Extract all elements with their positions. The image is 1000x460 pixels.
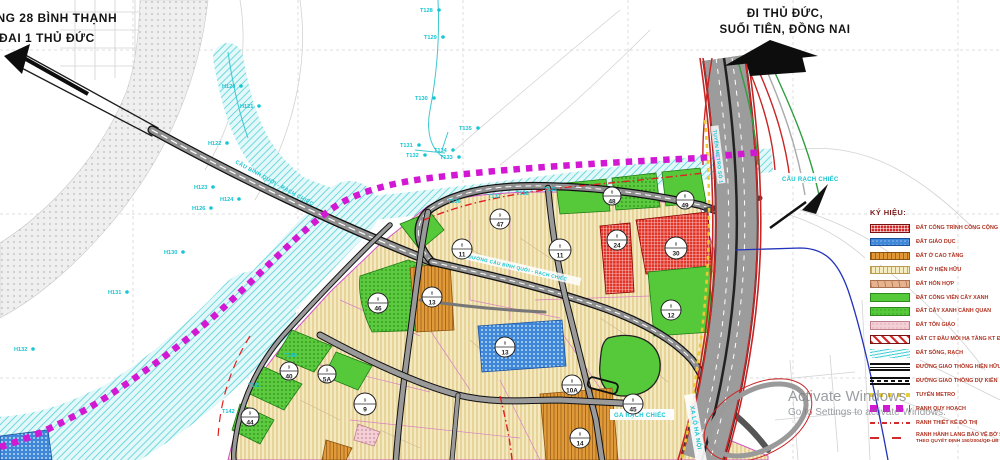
svg-text:14: 14 [576,441,584,448]
legend-label: RANH THIẾT KẾ ĐÔ THỊ [916,420,977,426]
parcel-badge: 95A [318,365,336,384]
legend-label: ĐẤT CÔNG VIÊN CÂY XANH [916,295,988,301]
legend-swatch-mixed-use [870,280,910,289]
svg-text:46: 46 [374,306,382,313]
survey-point-label: T139 [544,187,557,193]
legend-row: RANH HÀNH LANG BẢO VỆ BỜ SÔNG, KÊNH RẠCH… [870,432,1000,444]
legend-row: ĐƯỜNG GIAO THÔNG HIỆN HỮU [870,363,1000,372]
parcel-badge: 848 [603,187,621,206]
survey-point-label: T136 [448,199,461,205]
svg-text:45: 45 [629,407,637,414]
survey-point-label: H124 [220,197,234,203]
svg-text:24: 24 [613,243,621,250]
svg-text:9: 9 [499,213,502,218]
parcel-badge: 99 [354,393,376,415]
legend-label: RANH HÀNH LANG BẢO VỆ BỜ SÔNG, KÊNH RẠCH… [916,432,1000,444]
survey-point-label: H120 [222,84,235,90]
svg-text:47: 47 [496,222,504,229]
legend-label: ĐẤT CT ĐẦU MỐI HẠ TẦNG KT ĐÔ THỊ [916,336,1000,342]
legend-swatch-planning-boundary [870,405,910,414]
destination-line: SUỐI TIÊN, ĐỒNG NAI [700,22,870,38]
destination-label-northwest: ỨNG 28 BÌNH THẠNH H ĐAI 1 THỦ ĐỨC [0,8,117,48]
legend-row: ĐƯỜNG GIAO THÔNG DỰ KIẾN [870,377,1000,386]
legend-swatch-river [870,349,910,358]
parcel-badge: 812 [661,300,681,320]
svg-text:5A: 5A [323,377,332,384]
survey-point-label: T128 [420,8,433,14]
road-name-label: CẦU RẠCH CHIẾC [782,176,839,183]
legend-swatch-protection-corridor [870,434,910,443]
survey-point-label: T137 [488,194,501,200]
parcel-badge: 830 [665,237,687,259]
legend-row: ĐẤT CÔNG TRÌNH CÔNG CỘNG [870,224,1000,233]
legend-label: RANH QUY HOẠCH [916,406,966,412]
legend-label: ĐẤT CÂY XANH CẢNH QUAN [916,308,991,314]
legend-label: ĐƯỜNG GIAO THÔNG DỰ KIẾN [916,378,998,384]
survey-point-label: T138 [516,191,529,197]
svg-text:8: 8 [611,190,614,195]
legend-row: ĐẤT Ở HIỆN HỮU [870,266,1000,275]
svg-text:8: 8 [675,242,678,247]
zone-park-oval [600,335,660,396]
svg-text:13: 13 [501,350,509,357]
legend-swatch-highrise [870,252,910,261]
legend-swatch-metro [870,391,910,400]
legend-row: ĐẤT HỖN HỢP [870,280,1000,289]
legend-swatch-education [870,238,910,247]
svg-text:8: 8 [559,244,562,249]
parcel-badge: 814 [570,428,590,448]
survey-point-label: H123 [194,185,207,191]
survey-point-label: H132 [14,347,27,353]
svg-text:9: 9 [363,407,367,414]
destination-line: ỨNG 28 BÌNH THẠNH [0,8,117,28]
svg-text:49: 49 [681,203,689,210]
svg-text:8: 8 [670,304,673,309]
legend-swatch-park [870,293,910,302]
legend-swatch-road-existing [870,363,910,372]
legend-label: TUYẾN METRO [916,392,955,398]
svg-text:30: 30 [672,251,680,258]
parcel-badge: 849 [676,191,694,210]
parcel-badge: 810A [562,375,582,395]
legend-row: TUYẾN METRO [870,391,1000,400]
legend-swatch-road-planned [870,377,910,386]
legend-row: ĐẤT CÔNG VIÊN CÂY XANH [870,293,1000,302]
legend-label: ĐẤT CÔNG TRÌNH CÔNG CỘNG [916,225,998,231]
svg-text:9: 9 [326,368,329,373]
svg-text:8: 8 [616,234,619,239]
legend-row: RANH THIẾT KẾ ĐÔ THỊ [870,418,1000,427]
legend-swatch-existing-housing [870,266,910,275]
legend-swatch-landscape-green [870,307,910,316]
legend-label: ĐẤT SÔNG, RẠCH [916,350,963,356]
legend-label: ĐẤT GIÁO DỤC [916,239,956,245]
zone-park-east [648,266,712,336]
svg-text:9: 9 [377,297,380,302]
parcel-badge: 813 [495,337,515,357]
svg-text:8: 8 [431,291,434,296]
svg-text:11: 11 [557,253,564,260]
survey-point-label: T130 [415,96,428,102]
survey-point-label: H126 [192,206,205,212]
survey-point-label: T141 [248,383,261,389]
legend-swatch-urban-design [870,418,910,427]
legend-title: KÝ HIỆU: [870,208,1000,217]
legend-row: ĐẤT CÂY XANH CẢNH QUAN [870,307,1000,316]
legend-swatch-public-works [870,224,910,233]
legend-row: RANH QUY HOẠCH [870,405,1000,414]
svg-text:40: 40 [285,374,293,381]
legend-label: ĐẤT TÔN GIÁO [916,322,955,328]
survey-point-label: T132 [406,153,419,159]
parcel-badge: 811 [549,239,571,261]
legend-row: ĐẤT TÔN GIÁO [870,321,1000,330]
svg-text:10A: 10A [566,388,578,395]
legend-label: ĐẤT Ở CAO TẦNG [916,253,963,259]
survey-point-label: H130 [164,250,177,256]
legend-row: ĐẤT SÔNG, RẠCH [870,349,1000,358]
legend-label: ĐƯỜNG GIAO THÔNG HIỆN HỮU [916,364,1000,370]
svg-text:8: 8 [684,194,687,199]
svg-text:8: 8 [461,243,464,248]
survey-point-label: T129 [424,35,437,41]
svg-text:11: 11 [459,252,466,259]
parcel-badge: 946 [368,293,388,313]
destination-label-northeast: ĐI THỦ ĐỨC, SUỐI TIÊN, ĐỒNG NAI [700,6,870,38]
planning-map-screenshot: CẦU BÌNH QUỚI - RẠCH CHIẾC ĐƯỜNG CẦU BÌN… [0,0,1000,460]
bridge-callout-arrow [770,184,828,228]
legend-row: ĐẤT CT ĐẦU MỐI HẠ TẦNG KT ĐÔ THỊ [870,335,1000,344]
parcel-badge: 947 [490,209,510,229]
svg-text:8: 8 [571,379,574,384]
survey-point-label: H131 [108,290,121,296]
parcel-badge: 940 [280,362,298,381]
survey-point-label: T135 [459,126,472,132]
survey-point-label: T142 [222,409,235,415]
destination-line: ĐI THỦ ĐỨC, [700,6,870,22]
zone-education [478,320,566,372]
parcel-badge: 845 [623,394,643,414]
survey-point-label: T140 [284,353,297,359]
svg-text:9: 9 [249,411,252,416]
svg-text:8: 8 [504,341,507,346]
legend-swatch-religion [870,321,910,330]
svg-text:44: 44 [246,420,254,427]
svg-text:8: 8 [632,398,635,403]
survey-point-label: T133 [440,155,453,161]
legend-label: ĐẤT Ở HIỆN HỮU [916,267,961,273]
svg-text:48: 48 [608,199,616,206]
svg-text:9: 9 [288,365,291,370]
station-label: GA RẠCH CHIẾC [614,412,666,419]
svg-text:8: 8 [579,432,582,437]
legend-label: ĐẤT HỖN HỢP [916,281,954,287]
map-canvas: CẦU BÌNH QUỚI - RẠCH CHIẾC ĐƯỜNG CẦU BÌN… [0,0,1000,460]
parcel-badge: 944 [241,408,259,427]
destination-line: H ĐAI 1 THỦ ĐỨC [0,28,117,48]
survey-point-label: T131 [400,143,413,149]
legend-swatch-infrastructure [870,335,910,344]
legend: KÝ HIỆU: ĐẤT CÔNG TRÌNH CÔNG CỘNG ĐẤT GI… [870,208,1000,449]
legend-row: ĐẤT GIÁO DỤC [870,238,1000,247]
parcel-badge: 813 [422,287,442,307]
svg-text:12: 12 [667,313,675,320]
svg-text:13: 13 [428,300,436,307]
survey-point-label: H122 [208,141,221,147]
parcel-badge: 824 [607,230,627,250]
survey-point-label: T134 [434,148,448,154]
survey-point-label: H121 [240,104,253,110]
legend-row: ĐẤT Ở CAO TẦNG [870,252,1000,261]
parcel-badge: 811 [452,239,472,259]
svg-text:9: 9 [364,398,367,403]
